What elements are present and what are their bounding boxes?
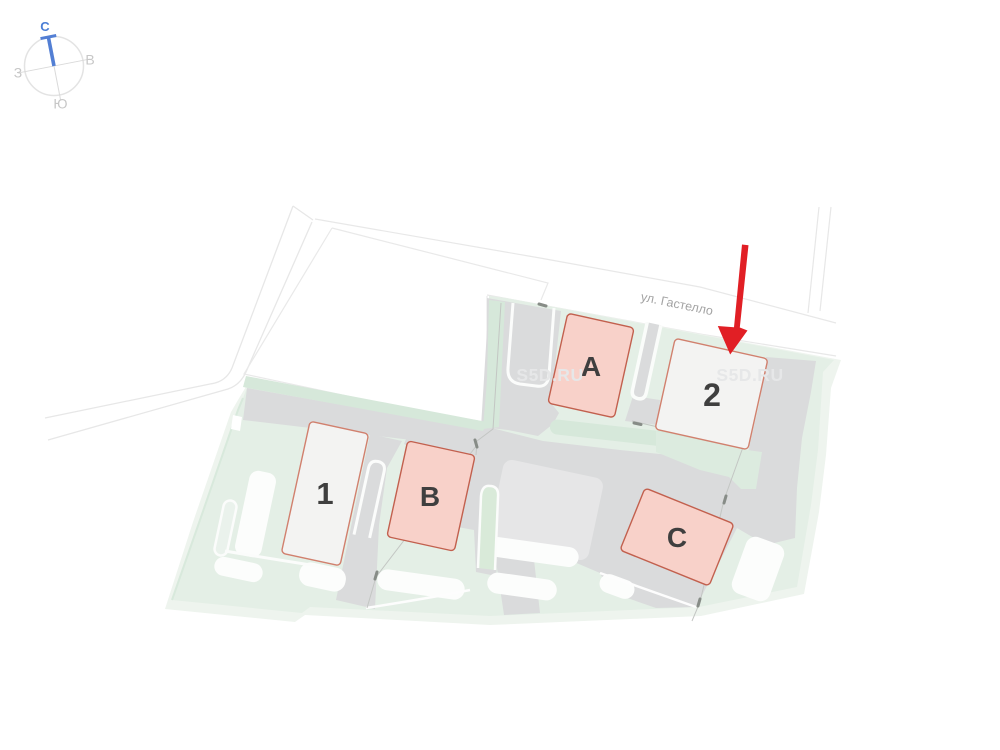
svg-text:С: С [40, 19, 50, 34]
svg-text:З: З [14, 65, 22, 81]
svg-text:S5D.RU: S5D.RU [716, 365, 783, 385]
svg-text:А: А [581, 351, 601, 382]
svg-text:S5D.RU: S5D.RU [516, 365, 583, 385]
svg-text:Ю: Ю [53, 96, 67, 112]
svg-text:1: 1 [316, 476, 333, 511]
svg-text:В: В [85, 52, 94, 68]
svg-text:С: С [667, 522, 687, 553]
svg-text:В: В [420, 481, 440, 512]
